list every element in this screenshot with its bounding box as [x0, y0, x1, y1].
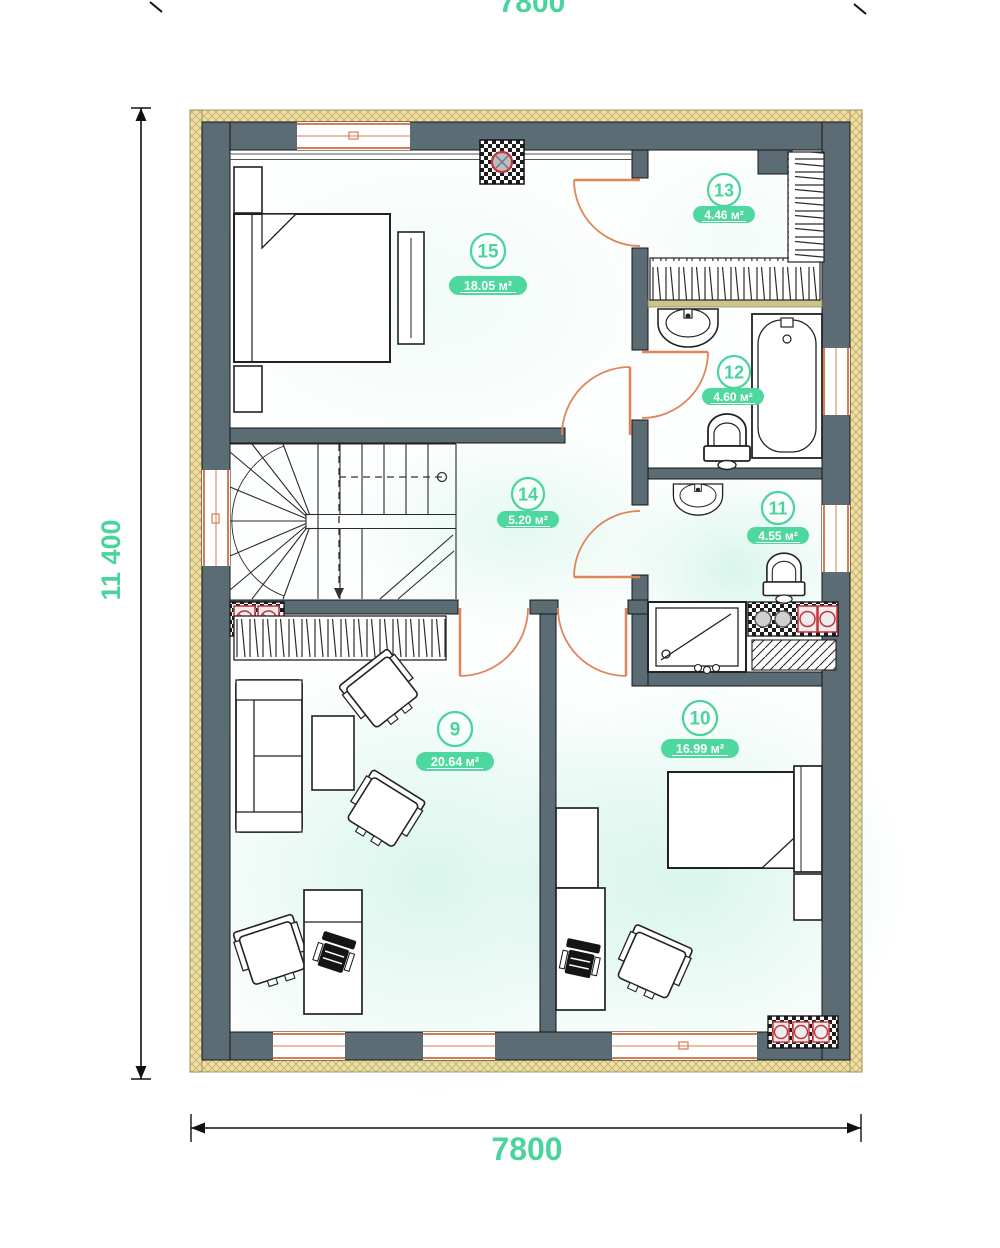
single-bed: [668, 766, 822, 872]
window-right-2: [822, 505, 850, 572]
dimension-left: 11 400: [96, 108, 151, 1079]
dimension-left-text: 11 400: [96, 519, 126, 600]
shelf-bath11: [752, 640, 836, 670]
wardrobe-closet13-bottom: [650, 258, 820, 300]
dimension-bottom: 7800: [191, 1114, 861, 1167]
vent-room10: [768, 1016, 838, 1048]
window-right-1: [822, 348, 850, 415]
room-number: 12: [724, 363, 744, 383]
window-bottom-2: [423, 1032, 495, 1060]
window-bottom-3: [612, 1032, 757, 1060]
wardrobe-closet13-right: [788, 152, 824, 262]
room-number: 14: [518, 485, 538, 505]
room-area: 18.05 м²: [464, 279, 512, 293]
bathtub: [752, 314, 822, 458]
dresser: [398, 232, 424, 344]
room-number: 11: [768, 499, 787, 519]
room-number: 10: [689, 709, 710, 730]
room-number: 15: [477, 242, 499, 263]
window-bottom-1: [273, 1032, 345, 1060]
double-bed: [234, 214, 390, 362]
nightstand: [234, 366, 262, 412]
nightstand: [794, 874, 822, 920]
dim-tick: [854, 4, 866, 14]
coffee-table: [312, 716, 354, 790]
dimension-bottom-text: 7800: [491, 1131, 562, 1167]
desk: [556, 808, 605, 1010]
room-area: 4.46 м²: [704, 208, 744, 222]
room-area: 5.20 м²: [508, 513, 548, 527]
room-area: 4.55 м²: [758, 529, 798, 543]
light-partition: [648, 300, 822, 307]
toilet: [763, 553, 804, 603]
dim-tick: [150, 2, 162, 12]
room-number: 13: [714, 181, 734, 201]
wardrobe-room9: [234, 616, 446, 660]
window-left: [202, 470, 230, 566]
chimney-top: [480, 140, 524, 184]
dimension-top: 7800: [499, 0, 566, 19]
stair-newel: [306, 515, 318, 529]
room-area: 16.99 м²: [676, 742, 724, 756]
insulation-top: [190, 110, 862, 122]
window-top: [297, 122, 410, 150]
room-number: 9: [450, 720, 461, 741]
vent-bath11: [748, 602, 838, 636]
room-area: 4.60 м²: [713, 390, 753, 404]
toilet: [704, 414, 750, 470]
duct-stub: [758, 150, 792, 174]
room-area: 20.64 м²: [431, 755, 479, 769]
floor-plan-drawing: 7800 11 400 7800: [0, 0, 1000, 1248]
nightstand: [234, 167, 262, 213]
shower: [648, 602, 746, 674]
sofa: [236, 680, 302, 832]
floor-plan-page: 7800 11 400 7800: [0, 0, 1000, 1248]
